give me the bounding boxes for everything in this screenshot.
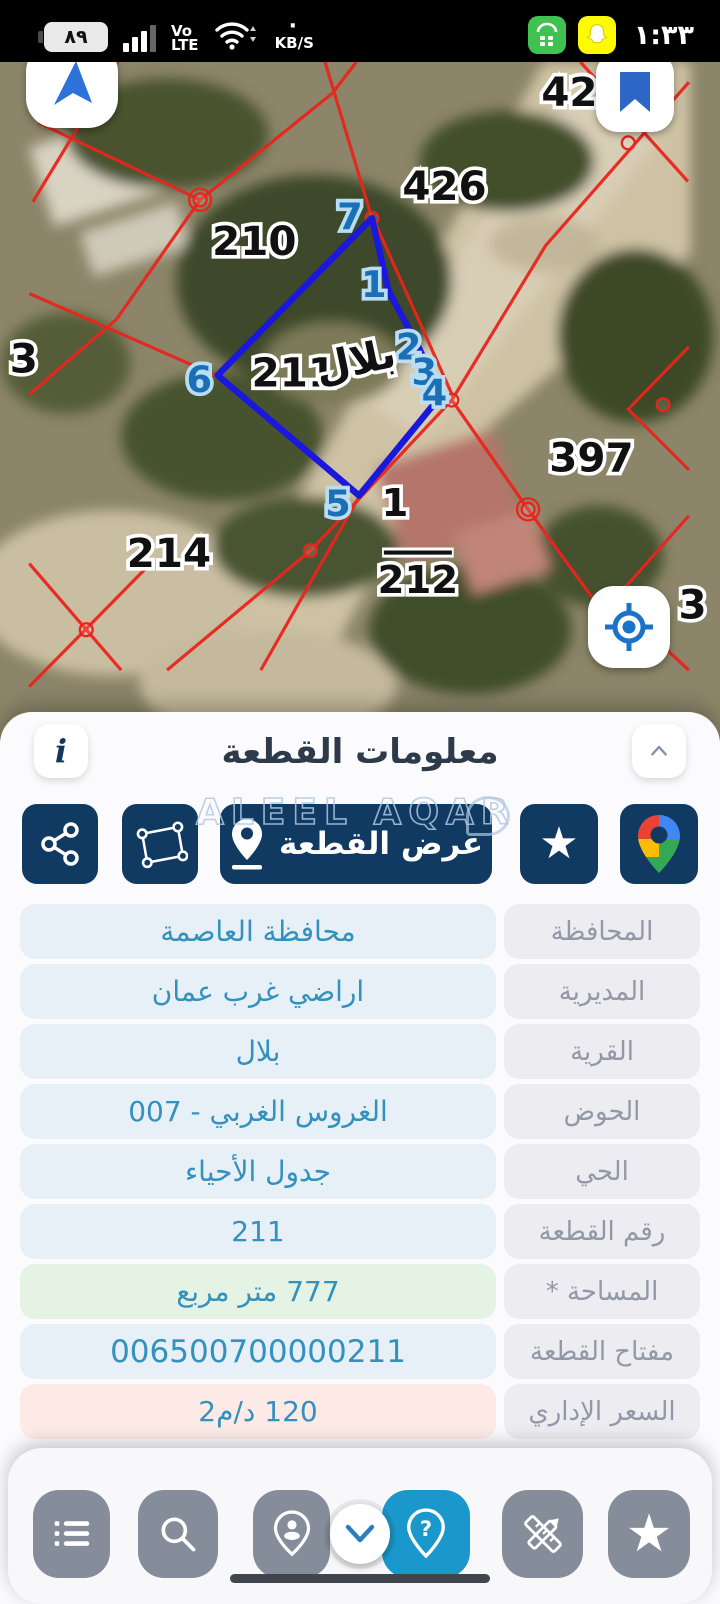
google-maps-icon: [636, 813, 682, 875]
table-row-neighborhood: الحي جدول الأحياء: [20, 1144, 700, 1199]
network-type-label: Vo LTE: [171, 24, 199, 52]
table-row-parcel-number: رقم القطعة 211: [20, 1204, 700, 1259]
star-icon: ★: [539, 822, 578, 866]
table-row-governorate: المحافظة محافظة العاصمة: [20, 904, 700, 959]
wifi-icon: [214, 18, 258, 52]
row-value: محافظة العاصمة: [20, 904, 496, 959]
collapse-button[interactable]: [632, 724, 686, 778]
list-icon: [50, 1514, 94, 1554]
signal-bars-icon: [123, 24, 156, 52]
location-pin-icon: [229, 817, 265, 871]
net-speed-label: KB/S: [275, 34, 314, 52]
my-location-icon: [603, 601, 655, 653]
row-label: القرية: [504, 1024, 700, 1079]
parcel-label-1: 1: [381, 481, 408, 526]
vertex-label-7: 7: [337, 195, 363, 238]
row-value: بلال: [20, 1024, 496, 1079]
sheet-header: i معلومات القطعة: [0, 712, 720, 804]
battery-percent: ٨٩: [64, 26, 87, 48]
person-pin-icon: [270, 1509, 314, 1559]
sheet-title: معلومات القطعة: [0, 732, 720, 772]
row-value: 211: [20, 1204, 496, 1259]
vertex-label-6: 6: [186, 358, 212, 401]
favorite-button[interactable]: ★: [520, 804, 598, 884]
table-row-basin: الحوض الغروس الغربي - 007: [20, 1084, 700, 1139]
row-value: 006500700000211: [20, 1324, 496, 1379]
parcel-attributes-table: المحافظة محافظة العاصمة المديرية اراضي غ…: [0, 900, 720, 1439]
chevron-up-icon: [641, 733, 677, 769]
share-button[interactable]: [22, 804, 98, 884]
parcel-label-214: 214: [127, 529, 211, 577]
search-button[interactable]: [138, 1490, 218, 1578]
row-value: الغروس الغربي - 007: [20, 1084, 496, 1139]
search-icon: [156, 1512, 200, 1556]
parcel-label-42: 42: [541, 68, 597, 116]
table-row-area: المساحة * 777 متر مربع: [20, 1264, 700, 1319]
row-label: الحي: [504, 1144, 700, 1199]
table-row-directorate: المديرية اراضي غرب عمان: [20, 964, 700, 1019]
layers-list-button[interactable]: [33, 1490, 110, 1578]
vertex-label-5: 5: [325, 482, 351, 525]
view-parcel-button[interactable]: عرض القطعة: [220, 804, 492, 884]
table-row-village: القرية بلال: [20, 1024, 700, 1079]
table-row-admin-price: السعر الإداري 120 د/م2: [20, 1384, 700, 1439]
google-maps-button[interactable]: [620, 804, 698, 884]
clock-label: ١:٣٣: [634, 20, 694, 51]
row-label: رقم القطعة: [504, 1204, 700, 1259]
measure-tools-button[interactable]: [502, 1490, 583, 1578]
status-bar: ٨٩ Vo LTE KB/S: [0, 0, 720, 62]
battery-icon: ٨٩: [44, 22, 108, 52]
star-icon: ★: [626, 1508, 673, 1560]
row-label: الحوض: [504, 1084, 700, 1139]
row-value: اراضي غرب عمان: [20, 964, 496, 1019]
home-indicator[interactable]: [230, 1574, 490, 1583]
chevron-down-icon: [343, 1522, 377, 1546]
tools-icon: [519, 1510, 567, 1558]
parcel-label-210: 210: [212, 217, 296, 265]
row-label: مفتاح القطعة: [504, 1324, 700, 1379]
row-value: 777 متر مربع: [20, 1264, 496, 1319]
phone-screen: 7 1 2 3 4 5 6 426 210 211 397 214 1 42 3…: [0, 0, 720, 1604]
parcel-label-212: 212: [378, 558, 459, 603]
row-label: المديرية: [504, 964, 700, 1019]
draw-polygon-button[interactable]: [122, 804, 198, 884]
favorites-button[interactable]: ★: [608, 1490, 690, 1578]
navigation-arrow-icon: [40, 53, 104, 117]
share-icon: [38, 820, 82, 868]
parcel-label-3-right: 3: [678, 581, 706, 629]
table-row-parcel-key: مفتاح القطعة 006500700000211: [20, 1324, 700, 1379]
row-label: المساحة *: [504, 1264, 700, 1319]
my-location-button[interactable]: [588, 586, 670, 668]
vertex-label-1: 1: [361, 263, 387, 306]
vertex-label-4: 4: [422, 372, 448, 415]
parcel-query-button-active[interactable]: ?: [382, 1490, 470, 1578]
svg-text:?: ?: [420, 1516, 432, 1541]
view-parcel-label: عرض القطعة: [279, 826, 483, 862]
parcel-label-397: 397: [549, 434, 633, 482]
parcel-label-426: 426: [402, 162, 486, 210]
polygon-icon: [132, 818, 188, 870]
parcel-label-3-left: 3: [10, 334, 38, 382]
green-app-notification-icon: [528, 16, 566, 54]
row-value: 120 د/م2: [20, 1384, 496, 1439]
bookmark-button[interactable]: [596, 52, 674, 132]
snapchat-notification-icon: [578, 16, 616, 54]
bookmark-icon: [615, 68, 655, 116]
collapse-nav-button[interactable]: [330, 1504, 390, 1564]
row-label: المحافظة: [504, 904, 700, 959]
action-buttons-row: ALEEL AQAR: [0, 804, 720, 900]
person-location-button[interactable]: [253, 1490, 330, 1578]
question-pin-icon: ?: [403, 1507, 449, 1561]
bottom-nav-bar: ? ★: [8, 1448, 712, 1604]
satellite-map[interactable]: 7 1 2 3 4 5 6 426 210 211 397 214 1 42 3…: [0, 62, 720, 762]
row-value: جدول الأحياء: [20, 1144, 496, 1199]
parcel-label-212-group: 212: [378, 553, 459, 603]
row-label: السعر الإداري: [504, 1384, 700, 1439]
